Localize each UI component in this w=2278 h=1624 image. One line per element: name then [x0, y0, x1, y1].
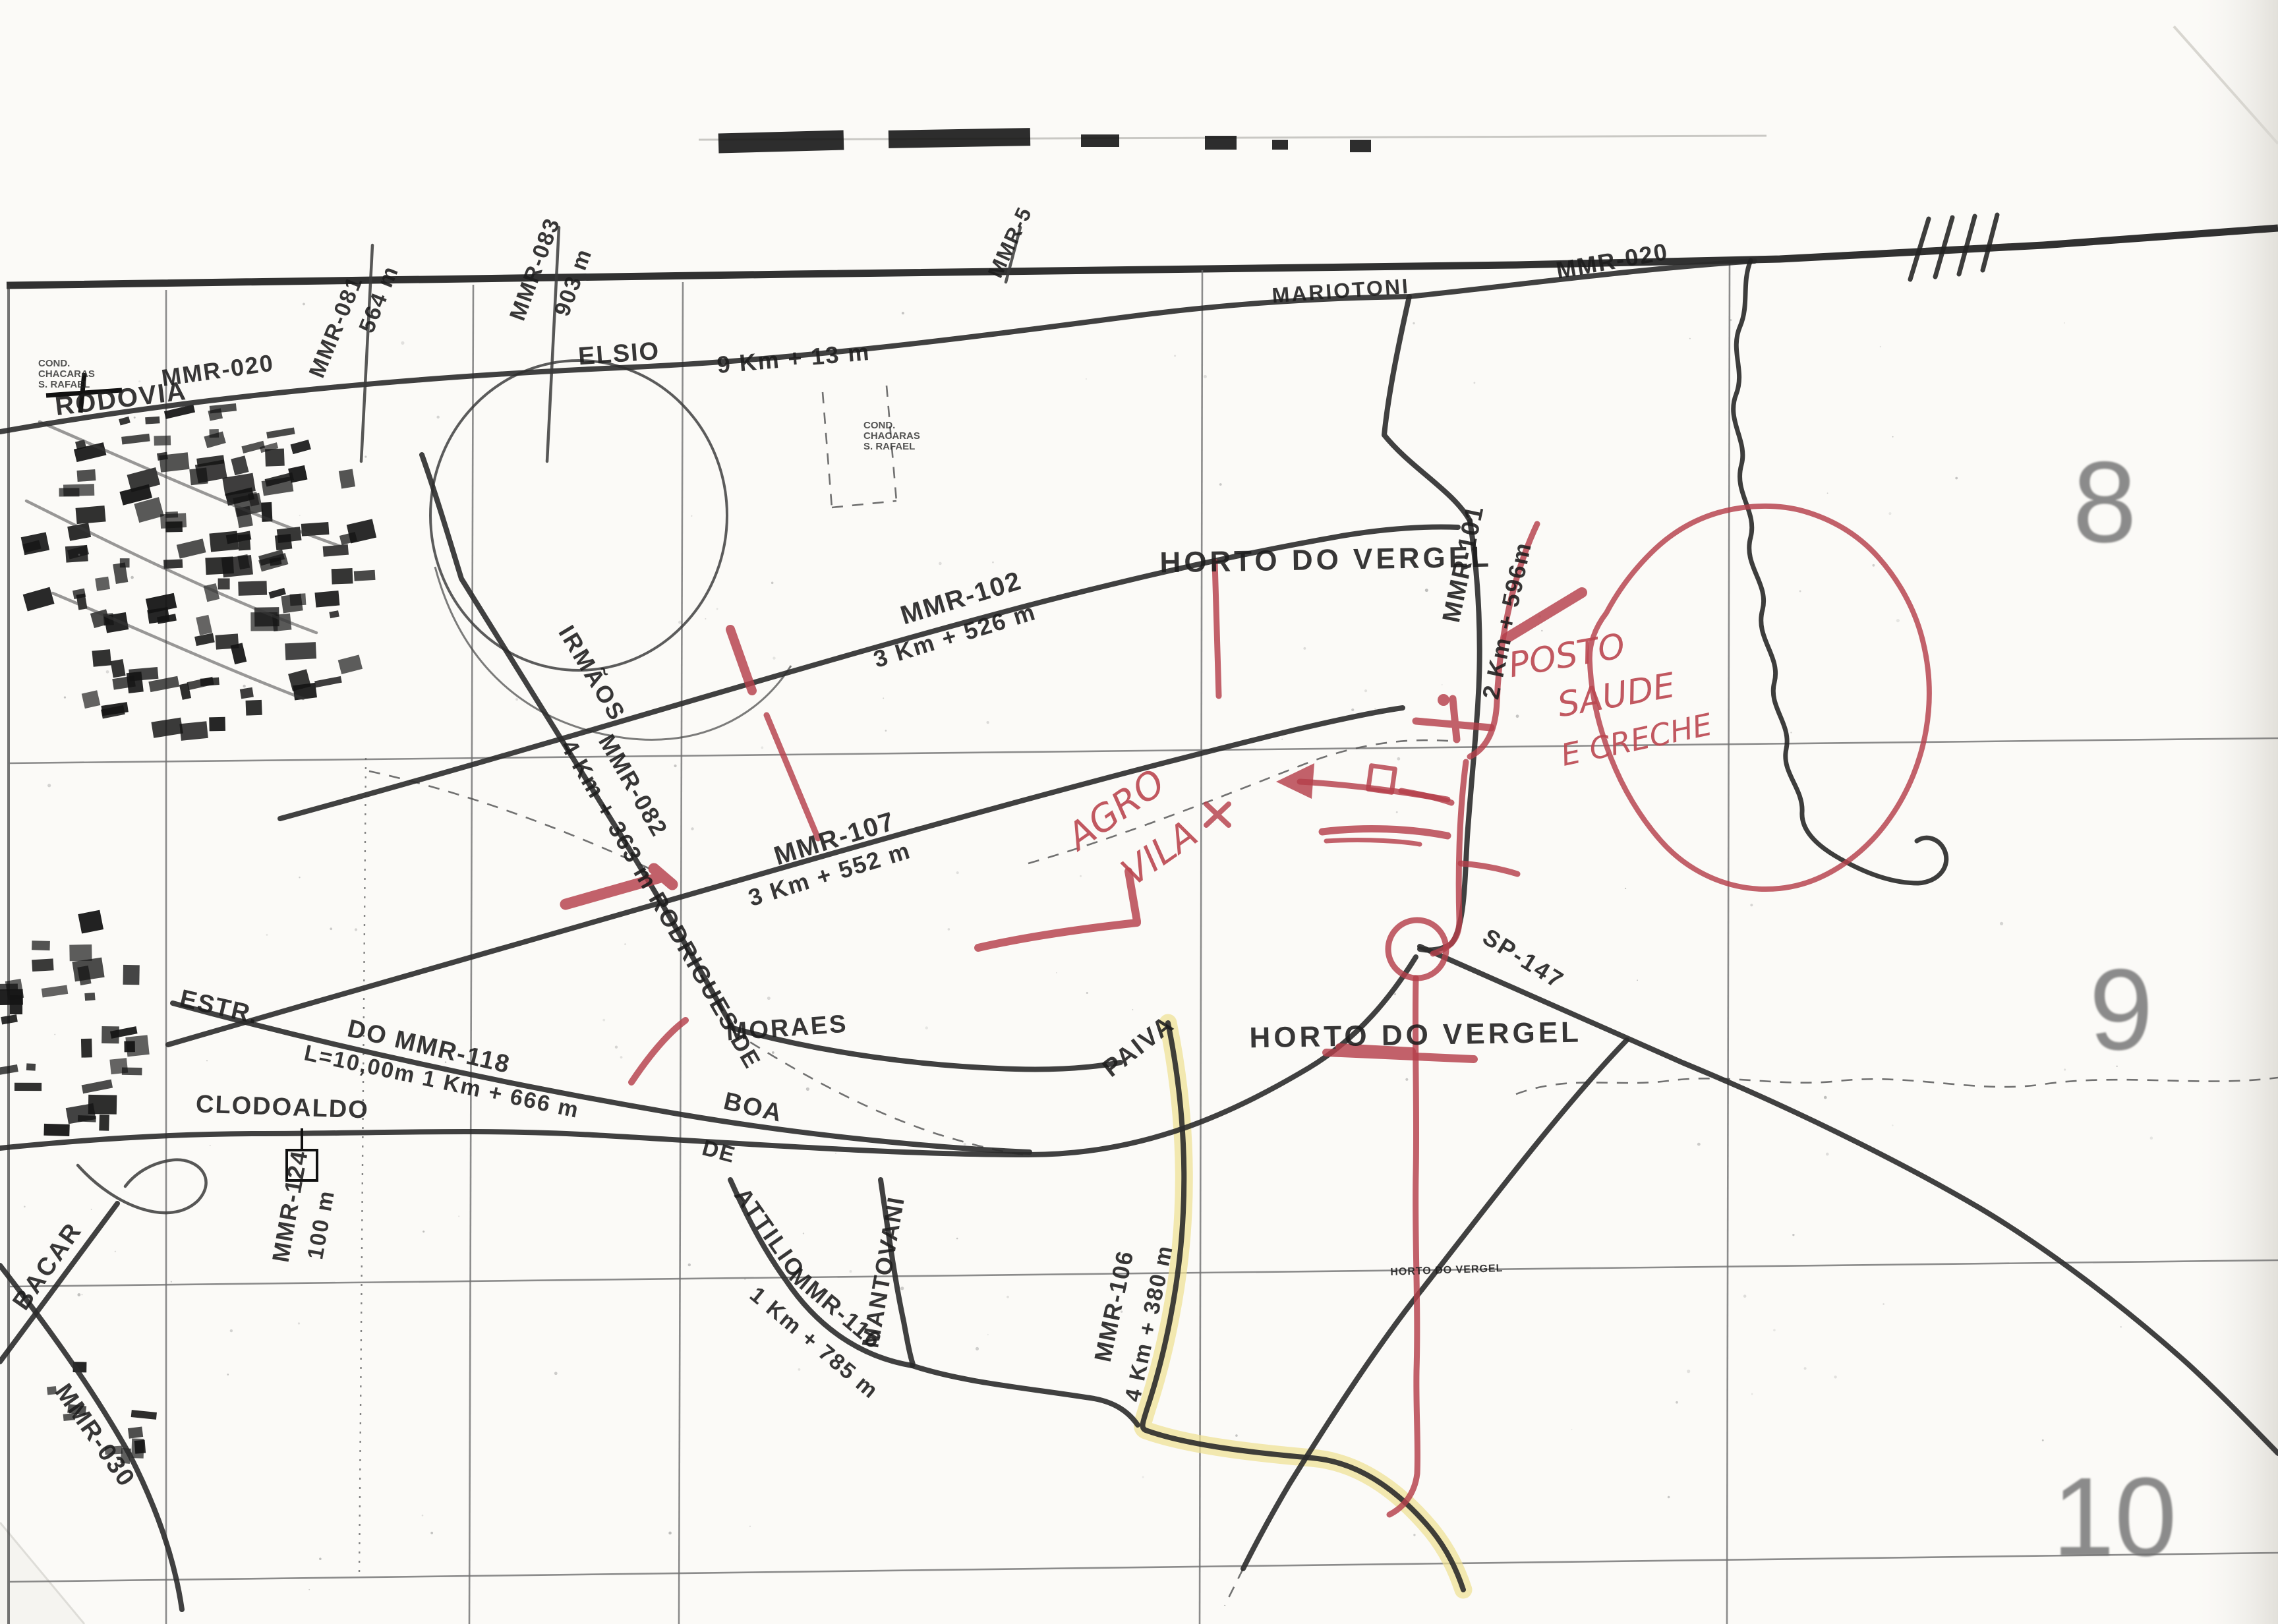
urban-block [285, 642, 316, 660]
noise-speck [1541, 630, 1542, 631]
red-dot [1438, 694, 1449, 706]
urban-block [209, 717, 225, 732]
noise-speck [987, 1334, 989, 1335]
urban-block [314, 591, 339, 608]
noise-speck [1056, 972, 1057, 973]
noise-speck [319, 1557, 322, 1560]
label-elsio: ELSIO [577, 337, 661, 371]
noise-speck [1697, 1143, 1701, 1146]
noise-speck [1880, 346, 1881, 347]
noise-speck [678, 621, 682, 624]
noise-speck [744, 1278, 746, 1280]
noise-speck [1955, 477, 1958, 480]
urban-block [240, 687, 254, 699]
noise-speck [798, 1368, 801, 1371]
noise-speck [2150, 1136, 2153, 1140]
noise-speck [615, 1045, 618, 1048]
urban-block [59, 488, 80, 496]
noise-speck [803, 1232, 804, 1234]
noise-speck [761, 746, 763, 749]
scanned-road-map: RODOVIAMMR-020ELSIO9 Km + 13 mMARIOTONIM… [0, 0, 2278, 1624]
urban-block [165, 521, 183, 532]
noise-speck [1625, 888, 1626, 889]
noise-speck [1883, 1303, 1884, 1305]
noise-speck [299, 877, 300, 878]
noise-speck [1751, 1393, 1753, 1395]
noise-speck [308, 1589, 310, 1590]
noise-speck [948, 928, 950, 931]
noise-speck [1824, 1096, 1827, 1099]
urban-block [209, 429, 219, 438]
noise-speck [206, 1060, 208, 1062]
noise-speck [964, 1143, 966, 1145]
noise-speck [1689, 338, 1691, 339]
noise-speck [1687, 1370, 1690, 1373]
urban-block [122, 1067, 142, 1075]
noise-speck [1834, 1376, 1836, 1378]
urban-block [32, 941, 50, 950]
noise-speck [1235, 1434, 1238, 1437]
noise-speck [850, 1270, 852, 1273]
noise-speck [266, 934, 268, 936]
noise-speck [1790, 732, 1792, 733]
noise-speck [401, 341, 404, 345]
urban-block [84, 993, 95, 1001]
noise-speck [772, 1051, 774, 1054]
noise-speck [134, 417, 136, 419]
noise-speck [2042, 1439, 2044, 1441]
noise-speck [1086, 378, 1087, 380]
urban-block [76, 506, 106, 524]
noise-speck [1743, 1294, 1747, 1298]
grid-number-10: 10 [2052, 1455, 2176, 1580]
noise-speck [54, 1034, 55, 1035]
noise-speck [1668, 1496, 1670, 1499]
noise-speck [1676, 1401, 1678, 1404]
noise-speck [1086, 992, 1088, 994]
noise-speck [987, 721, 989, 724]
label-horto-vergel-1: HORTO DO VERGEL [1159, 541, 1492, 579]
noise-speck [243, 685, 245, 687]
noise-speck [1413, 1534, 1415, 1536]
noise-speck [1007, 1296, 1009, 1298]
urban-block [134, 1440, 146, 1454]
noise-speck [47, 784, 51, 787]
urban-block [129, 667, 158, 681]
noise-speck [1896, 619, 1900, 622]
urban-block [125, 1035, 149, 1057]
urban-block [32, 958, 53, 971]
noise-speck [1773, 1329, 1776, 1331]
noise-speck [773, 656, 775, 659]
noise-speck [1804, 1367, 1807, 1370]
noise-speck [1405, 1078, 1408, 1081]
noise-speck [1142, 1476, 1144, 1478]
urban-block [78, 1115, 96, 1122]
noise-speck [1413, 322, 1415, 324]
urban-block [15, 1083, 42, 1091]
noise-speck [423, 1231, 424, 1232]
noise-speck [24, 1205, 26, 1207]
noise-speck [106, 670, 109, 674]
noise-speck [716, 608, 718, 610]
noise-speck [436, 416, 439, 419]
urban-block [209, 531, 239, 552]
noise-speck [365, 455, 366, 457]
urban-block [99, 1115, 109, 1131]
urban-block [205, 556, 234, 575]
noise-speck [230, 1329, 233, 1332]
urban-block [265, 449, 285, 467]
noise-speck [1799, 591, 1801, 593]
noise-speck [1174, 355, 1176, 357]
noise-speck [1888, 512, 1891, 515]
noise-speck [330, 927, 332, 930]
noise-speck [1730, 319, 1732, 321]
noise-speck [885, 730, 887, 732]
noise-speck [1132, 1009, 1134, 1010]
noise-speck [956, 1238, 958, 1240]
noise-speck [303, 303, 305, 306]
noise-speck [1303, 647, 1306, 650]
urban-block [92, 649, 111, 667]
noise-speck [1474, 382, 1476, 384]
noise-speck [1892, 436, 1894, 438]
urban-block [339, 469, 355, 489]
urban-block [128, 1426, 143, 1438]
noise-speck [835, 1153, 836, 1154]
noise-speck [422, 1515, 424, 1517]
noise-speck [925, 1026, 928, 1029]
urban-block [145, 417, 160, 424]
urban-block [76, 469, 96, 482]
urban-block [81, 1039, 92, 1058]
noise-speck [1281, 739, 1283, 740]
urban-block [289, 593, 306, 606]
urban-block [95, 577, 110, 591]
noise-speck [1219, 483, 1222, 486]
noise-speck [2064, 1068, 2066, 1070]
grid-number-9: 9 [2089, 946, 2153, 1074]
noise-speck [992, 562, 994, 564]
noise-speck [458, 1215, 459, 1217]
noise-speck [749, 1526, 751, 1527]
urban-block [123, 965, 139, 985]
noise-speck [620, 1056, 623, 1058]
urban-block [354, 570, 376, 581]
noise-speck [2000, 922, 2003, 925]
noise-speck [1204, 375, 1207, 378]
noise-speck [688, 1263, 691, 1266]
noise-speck [691, 515, 692, 517]
noise-speck [355, 928, 357, 931]
urban-block [65, 545, 88, 563]
noise-speck [210, 1145, 211, 1146]
grid-number-8: 8 [2072, 438, 2136, 567]
noise-speck [939, 562, 942, 565]
noise-speck [1637, 979, 1638, 981]
urban-block [218, 579, 230, 590]
urban-block [26, 1063, 36, 1070]
noise-speck [1080, 875, 1082, 877]
noise-speck [1571, 1429, 1573, 1430]
noise-speck [78, 554, 80, 556]
noise-speck [298, 1322, 300, 1324]
urban-block [69, 944, 92, 961]
noise-speck [806, 1087, 809, 1091]
noise-speck [976, 1347, 979, 1350]
noise-speck [1397, 757, 1400, 761]
urban-block [179, 721, 208, 741]
noise-speck [1396, 811, 1398, 813]
urban-block [159, 452, 189, 473]
noise-speck [883, 697, 884, 699]
urban-block [246, 700, 262, 716]
noise-speck [64, 696, 66, 698]
noise-speck [1826, 1153, 1829, 1156]
noise-speck [1425, 589, 1428, 592]
urban-block [238, 534, 251, 550]
noise-speck [771, 582, 774, 585]
urban-block [238, 581, 267, 595]
noise-speck [602, 1019, 605, 1022]
noise-speck [902, 312, 904, 314]
urban-block [44, 1124, 69, 1136]
noise-speck [956, 871, 959, 874]
noise-speck [115, 1251, 116, 1252]
noise-speck [227, 1374, 229, 1376]
urban-block [332, 568, 353, 585]
noise-speck [705, 618, 706, 620]
noise-speck [1516, 714, 1519, 718]
urban-block [88, 1095, 117, 1115]
urban-block [154, 436, 171, 446]
scanned-map-page: RODOVIAMMR-020ELSIO9 Km + 13 mMARIOTONIM… [0, 0, 2278, 1624]
red-line-on-gridline [1215, 562, 1219, 696]
noise-speck [1364, 689, 1367, 692]
noise-speck [1442, 684, 1443, 685]
noise-speck [900, 1287, 904, 1290]
noise-speck [1872, 564, 1875, 567]
noise-speck [1394, 993, 1396, 995]
noise-speck [2120, 1326, 2122, 1327]
urban-block [0, 989, 23, 1005]
noise-speck [81, 1294, 82, 1295]
noise-speck [1351, 709, 1354, 711]
noise-speck [691, 827, 693, 830]
noise-speck [1892, 1124, 1893, 1126]
urban-block [323, 544, 349, 557]
noise-speck [624, 943, 626, 945]
noise-speck [2064, 322, 2065, 324]
noise-speck [131, 576, 134, 579]
urban-block [78, 910, 103, 934]
label-horto-vergel-2: HORTO DO VERGEL [1249, 1016, 1582, 1055]
noise-speck [299, 515, 301, 516]
urban-block [163, 559, 183, 569]
noise-speck [767, 997, 771, 1000]
noise-speck [668, 1532, 672, 1535]
noise-speck [91, 1209, 92, 1210]
noise-speck [1827, 492, 1828, 494]
noise-speck [171, 1281, 172, 1283]
noise-speck [554, 1372, 558, 1375]
noise-speck [77, 1293, 80, 1296]
noise-speck [515, 698, 518, 701]
noise-speck [1792, 1234, 1794, 1236]
noise-speck [430, 1532, 433, 1534]
noise-speck [674, 765, 676, 767]
noise-speck [1750, 904, 1753, 906]
